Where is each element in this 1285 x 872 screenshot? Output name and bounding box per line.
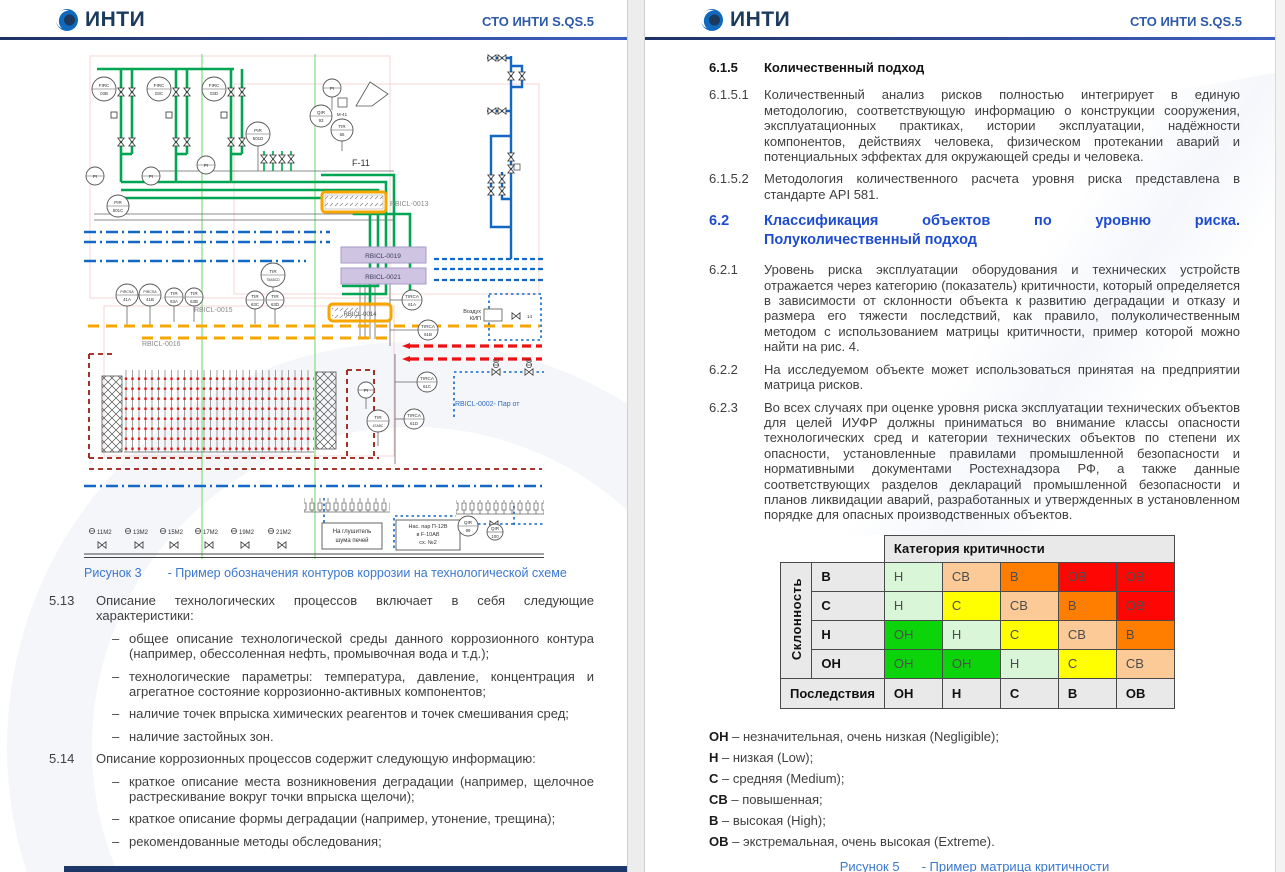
matrix-cell: СВ: [1000, 591, 1058, 620]
valve-tag: M5: [526, 358, 533, 363]
instrument-bubble: TIR75ABCD: [261, 263, 285, 287]
left-page-content: Рисунок 3- Пример обозначения контуров к…: [49, 566, 594, 856]
section-number: 5.13: [49, 593, 96, 744]
svg-text:PIRCSA: PIRCSA: [120, 290, 134, 294]
instrument-bubble: TIR67ABC: [367, 410, 389, 432]
section-number: 5.14: [49, 751, 96, 849]
legend-item: СВ – повышенная;: [709, 792, 1240, 807]
document-viewer: ИНТИ СТО ИНТИ S.QS.5: [0, 0, 1285, 872]
section-6-2-3: 6.2.3 Во всех случаях при оценке уровня …: [709, 400, 1240, 523]
bullet-item: краткое описание места возникновения дег…: [96, 774, 594, 805]
section-5-14: 5.14 Описание коррозионных процессов сод…: [49, 751, 594, 849]
matrix-cell: С: [1000, 620, 1058, 649]
header-rule: [0, 37, 627, 40]
matrix-row-label: ОН: [812, 649, 885, 678]
svg-text:65: 65: [340, 132, 345, 137]
instrument-bubble: TIRCA61C: [417, 372, 437, 392]
matrix-cell: ОВ: [1116, 562, 1174, 591]
matrix-row-label: С: [812, 591, 885, 620]
page-gutter: [627, 0, 645, 872]
section-6-1-5-1: 6.1.5.1 Количественный анализ рисков пол…: [709, 87, 1240, 164]
figure-label: Рисунок 3: [84, 566, 142, 580]
svg-text:63B: 63B: [190, 299, 198, 304]
footer-band: [64, 866, 627, 872]
matrix-cell: Н: [884, 562, 942, 591]
svg-text:63A: 63A: [170, 299, 178, 304]
loop-label: RBICL-0019: [365, 253, 401, 260]
section-title: Количественный подход: [764, 60, 1240, 75]
svg-text:63D: 63D: [271, 302, 279, 307]
legend-item: Н – низкая (Low);: [709, 750, 1240, 765]
valve-tag: 14: [527, 314, 533, 319]
instrument-bubble: PI: [358, 382, 374, 398]
furnace-coils: [102, 370, 336, 452]
svg-text:TIR: TIR: [170, 291, 178, 296]
instrument-bubble: TIR63D: [266, 291, 284, 309]
steam-box-label: в F-10АВ: [416, 532, 439, 538]
equipment-tag-f11: F-11: [352, 158, 370, 168]
svg-text:PI: PI: [330, 86, 334, 91]
section-text: Описание технологических процессов включ…: [96, 593, 594, 624]
svg-text:FIRC: FIRC: [99, 83, 110, 88]
svg-text:41A: 41A: [123, 297, 131, 302]
svg-text:PIRCSA: PIRCSA: [143, 290, 157, 294]
loop-label: RBICL-0016: [142, 341, 181, 348]
page-left: ИНТИ СТО ИНТИ S.QS.5: [0, 0, 627, 872]
matrix-cell: Н: [884, 591, 942, 620]
matrix-cell: С: [942, 591, 1000, 620]
instrument-bubble: TIR63A: [165, 288, 183, 306]
legend-item: В – высокая (High);: [709, 813, 1240, 828]
inti-logo: ИНТИ: [55, 8, 145, 32]
page-right: ИНТИ СТО ИНТИ S.QS.5 6.1.5 Количественны…: [645, 0, 1275, 872]
matrix-cell: С: [1058, 649, 1116, 678]
burner-rows: [304, 498, 544, 514]
instrument-bubble: PIRCSA41A: [116, 284, 138, 306]
instrument-bubble: FIRC03D: [202, 77, 226, 101]
section-number: 6.1.5.1: [709, 87, 764, 164]
doc-code: СТО ИНТИ S.QS.5: [1130, 14, 1242, 29]
valve-tag: 17M2: [203, 530, 219, 536]
svg-text:PI: PI: [204, 163, 208, 168]
svg-text:63C: 63C: [251, 302, 259, 307]
instrument-bubble: PIR501D: [246, 122, 270, 146]
bullet-item: технологические параметры: температура, …: [96, 669, 594, 700]
loop-label: RBICL-0002- Пар от: [455, 401, 520, 408]
instrument-bubble: PI: [142, 167, 160, 185]
svg-text:PIR: PIR: [114, 200, 122, 205]
matrix-cell: ОН: [942, 649, 1000, 678]
logo-text: ИНТИ: [85, 8, 145, 32]
svg-text:61B: 61B: [424, 332, 432, 337]
instrument-bubble: TIR65: [331, 119, 353, 141]
bullet-item: общее описание технологической среды дан…: [96, 631, 594, 662]
svg-text:QIR: QIR: [491, 526, 500, 531]
matrix-cell: СВ: [1116, 649, 1174, 678]
matrix-col-label: В: [1058, 678, 1116, 708]
matrix-cell: Н: [1000, 649, 1058, 678]
instrument-bubble: TIRCA61D: [404, 409, 424, 429]
instrument-bubble: PIRCSA41B: [139, 284, 161, 306]
svg-text:TIR: TIR: [374, 415, 382, 420]
process-diagram: FIRC03B FIRC03C FIRC03D PIR501D PI QIR93…: [84, 54, 544, 559]
logo-icon: [700, 8, 724, 32]
loop-label: RBICL-0014: [343, 312, 377, 318]
section-number: 6.2.2: [709, 362, 764, 393]
svg-text:67ABC: 67ABC: [373, 424, 384, 428]
instrument-bubble: PI: [323, 79, 341, 97]
svg-text:TIR: TIR: [251, 294, 259, 299]
bullet-item: наличие точек впрыска химических реагент…: [96, 706, 594, 721]
section-title: Классификация объектов по уровню риска. …: [764, 212, 1240, 250]
instrument-bubble: QIR100: [487, 524, 503, 540]
matrix-cell: ОВ: [1116, 591, 1174, 620]
svg-text:PI: PI: [364, 388, 368, 393]
matrix-x-axis-label: Последствия: [781, 678, 885, 708]
matrix-cell: СВ: [942, 562, 1000, 591]
section-text: Уровень риска эксплуатации оборудования …: [764, 262, 1240, 354]
instrument-bubble: TIR63B: [185, 288, 203, 306]
instrument-bubble: QIR93: [310, 105, 332, 127]
instrument-bubble: TIRCA61A: [402, 290, 422, 310]
header-rule: [645, 37, 1275, 40]
air-supply-label: КИП: [470, 316, 481, 322]
matrix-y-axis-label: Склонность: [781, 562, 812, 678]
scrollbar[interactable]: [1275, 0, 1285, 872]
valve-tag: 19M2: [239, 530, 255, 536]
matrix-cell: В: [1058, 591, 1116, 620]
right-page-content: 6.1.5 Количественный подход 6.1.5.1 Коли…: [709, 52, 1240, 872]
svg-text:QIR: QIR: [464, 520, 473, 525]
steam-box-label: сх. №2: [419, 540, 437, 546]
svg-text:03D: 03D: [210, 91, 218, 96]
svg-text:TIR: TIR: [269, 269, 277, 274]
instrument-bubble: PI: [197, 156, 215, 174]
svg-text:41B: 41B: [146, 297, 154, 302]
valve-tag: 21M2: [276, 530, 292, 536]
legend-item: С – средняя (Medium);: [709, 771, 1240, 786]
air-supply-label: Воздух: [463, 309, 481, 315]
page-header: ИНТИ СТО ИНТИ S.QS.5: [0, 0, 627, 40]
svg-text:PIR: PIR: [254, 128, 262, 133]
valve-tag: M4: [493, 358, 500, 363]
svg-text:TIR: TIR: [271, 294, 279, 299]
bullet-item: рекомендованные методы обследования;: [96, 834, 594, 849]
section-number: 6.2.3: [709, 400, 764, 523]
bullet-item: наличие застойных зон.: [96, 729, 594, 744]
section-6-2-1: 6.2.1 Уровень риска эксплуатации оборудо…: [709, 262, 1240, 354]
section-text: Количественный анализ рисков полностью и…: [764, 87, 1240, 164]
instrument-bubble: TIRCA61B: [418, 320, 438, 340]
matrix-cell: В: [1116, 620, 1174, 649]
svg-text:61D: 61D: [410, 421, 418, 426]
svg-text:FIRC: FIRC: [154, 83, 165, 88]
svg-text:PI: PI: [93, 174, 97, 179]
legend-item: ОН – незначительная, очень низкая (Negli…: [709, 729, 1240, 744]
instrument-bubble: FIRC03B: [92, 77, 116, 101]
svg-text:61A: 61A: [408, 302, 416, 307]
svg-text:03B: 03B: [100, 91, 108, 96]
svg-text:61C: 61C: [423, 384, 431, 389]
matrix-cell: Н: [942, 620, 1000, 649]
instrument-bubble: FIRC03C: [147, 77, 171, 101]
instrument-bubble: QIR99: [458, 516, 478, 536]
section-number: 6.2: [709, 212, 764, 250]
logo-icon: [55, 8, 79, 32]
instrument-bubbles: FIRC03B FIRC03C FIRC03D PIR501D PI QIR93…: [86, 77, 503, 540]
section-5-13: 5.13 Описание технологических процессов …: [49, 593, 594, 744]
instrument-bubble: PI: [86, 167, 104, 185]
figure-text: - Пример обозначения контуров коррозии н…: [168, 566, 567, 580]
svg-text:100: 100: [491, 534, 499, 539]
blue-piping: [487, 56, 522, 259]
matrix-legend: ОН – незначительная, очень низкая (Negli…: [709, 729, 1240, 849]
criticality-matrix-table: Категория критичности Склонность В Н СВ …: [780, 535, 1175, 709]
legend-item: ОВ – экстремальная, очень высокая (Extre…: [709, 834, 1240, 849]
muffler-box-label: На глушитель: [333, 529, 372, 535]
instrument-bubble: TIR63C: [246, 291, 264, 309]
svg-text:TIRCA: TIRCA: [407, 413, 422, 418]
section-number: 6.1.5.2: [709, 171, 764, 202]
bullet-item: краткое описание формы деградации (напри…: [96, 811, 594, 826]
section-text: На исследуемом объекте может использоват…: [764, 362, 1240, 393]
matrix-cell: ОН: [884, 620, 942, 649]
svg-text:99: 99: [466, 528, 471, 533]
matrix-row-label: В: [812, 562, 885, 591]
valve-tag: 11M2: [97, 530, 112, 536]
equipment-tag-m41: M-41: [337, 112, 348, 117]
heading-6-1-5: 6.1.5 Количественный подход: [709, 60, 1240, 75]
svg-text:QIR: QIR: [317, 110, 326, 115]
steam-box-label: Нас. пар П-12В: [408, 524, 447, 530]
svg-text:TIRCA: TIRCA: [405, 294, 420, 299]
section-6-1-5-2: 6.1.5.2 Методология количественного расч…: [709, 171, 1240, 202]
figure-label: Рисунок 5: [840, 859, 900, 872]
matrix-col-label: С: [1000, 678, 1058, 708]
green-drop-lines: [264, 151, 291, 171]
matrix-cell: СВ: [1058, 620, 1116, 649]
valve-tag: 13M2: [133, 530, 149, 536]
svg-text:FIRC: FIRC: [209, 83, 220, 88]
svg-text:501C: 501C: [113, 208, 124, 213]
section-text: Описание коррозионных процессов содержит…: [96, 751, 594, 766]
inti-logo: ИНТИ: [700, 8, 790, 32]
instrument-bubble: PIR501C: [107, 195, 129, 217]
figure-text: - Пример матрица критичности: [922, 859, 1110, 872]
logo-text: ИНТИ: [730, 8, 790, 32]
svg-text:TIR: TIR: [338, 124, 346, 129]
svg-text:PI: PI: [149, 174, 153, 179]
svg-text:TIRCA: TIRCA: [421, 324, 436, 329]
matrix-title: Категория критичности: [884, 535, 1174, 562]
page-header: ИНТИ СТО ИНТИ S.QS.5: [645, 0, 1275, 40]
figure-3-caption: Рисунок 3- Пример обозначения контуров к…: [84, 566, 594, 580]
valve-tag: 15M2: [168, 530, 184, 536]
matrix-cell: ОВ: [1058, 562, 1116, 591]
muffler-box-label: шума печей: [335, 537, 368, 544]
matrix-col-label: ОВ: [1116, 678, 1174, 708]
svg-text:TIR: TIR: [190, 291, 198, 296]
heading-6-2: 6.2 Классификация объектов по уровню рис…: [709, 212, 1240, 250]
matrix-col-label: ОН: [884, 678, 942, 708]
loop-label: RBICL-0015: [194, 307, 233, 314]
section-number: 6.2.1: [709, 262, 764, 354]
matrix-cell: В: [1000, 562, 1058, 591]
doc-code: СТО ИНТИ S.QS.5: [482, 14, 594, 29]
svg-text:93: 93: [319, 118, 324, 123]
figure-5-caption: Рисунок 5- Пример матрица критичности: [709, 859, 1240, 872]
loop-label: RBICL-0013: [390, 201, 429, 208]
svg-text:75ABCD: 75ABCD: [266, 278, 280, 282]
section-number: 6.1.5: [709, 60, 764, 75]
section-text: Методология количественного расчета уров…: [764, 171, 1240, 202]
matrix-row-label: Н: [812, 620, 885, 649]
section-6-2-2: 6.2.2 На исследуемом объекте может испол…: [709, 362, 1240, 393]
matrix-col-label: Н: [942, 678, 1000, 708]
svg-text:TIRCA: TIRCA: [420, 376, 435, 381]
svg-text:501D: 501D: [253, 136, 264, 141]
matrix-cell: ОН: [884, 649, 942, 678]
svg-text:03C: 03C: [155, 91, 163, 96]
loop-label: RBICL-0021: [365, 274, 401, 281]
blue-actuator: [514, 164, 520, 170]
section-text: Во всех случаях при оценке уровня риска …: [764, 400, 1240, 523]
